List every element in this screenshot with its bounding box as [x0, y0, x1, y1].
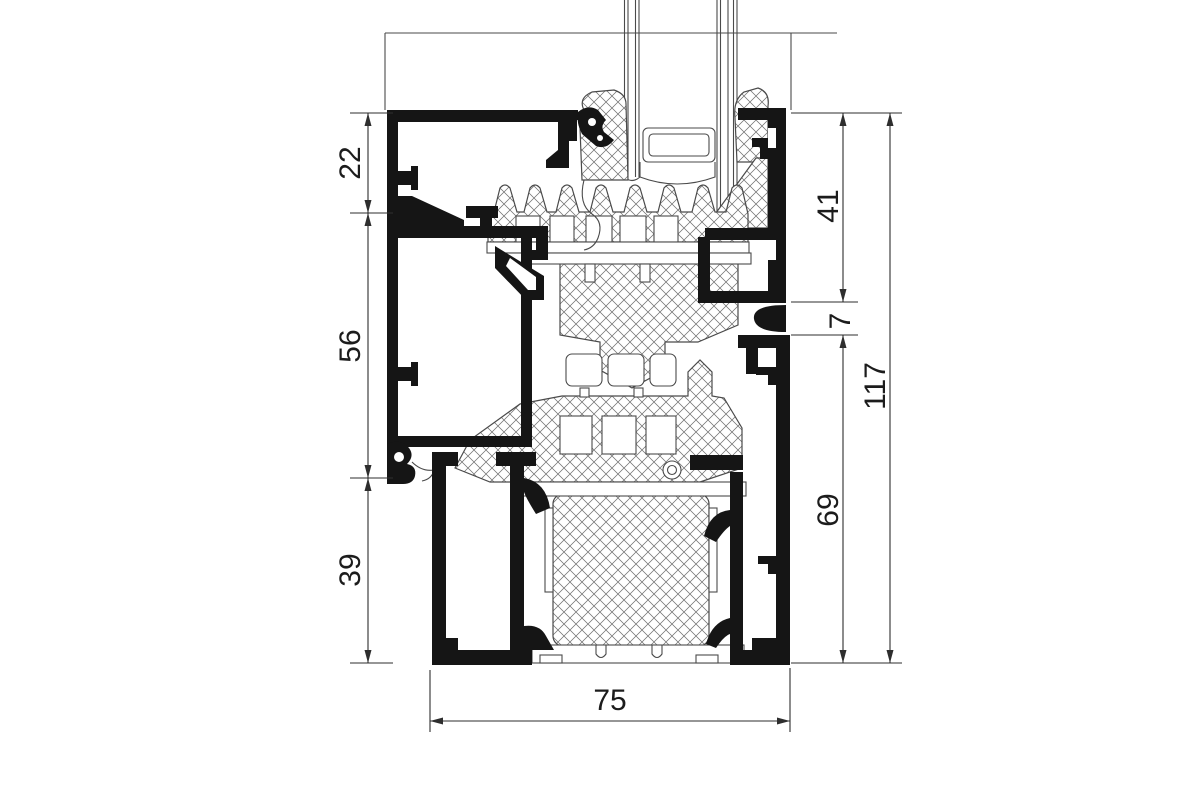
chamber-window	[608, 354, 644, 386]
dimension-label-39: 39	[334, 553, 367, 586]
dimension-label-41: 41	[812, 189, 845, 222]
plate-tab	[640, 264, 650, 282]
frame-right-outer-wall	[776, 335, 790, 665]
frame-right-hook	[758, 556, 776, 574]
drawing-canvas: 22 56 39 41 7 69 117 75	[0, 0, 1200, 800]
dimension-label-7: 7	[824, 313, 857, 330]
sill-foot	[752, 638, 778, 652]
sill-outer-left-wall	[432, 455, 446, 665]
dimension-label-56: 56	[334, 329, 367, 362]
sill-mid-bar	[690, 455, 743, 470]
dimension-label-69: 69	[812, 493, 845, 526]
block-bracket	[524, 626, 554, 650]
sill-cap-profile	[520, 482, 746, 496]
block-side-rail	[545, 508, 553, 592]
dimension-right-chain: 41 7 69 117	[791, 113, 902, 663]
glazing-bead-foot	[546, 150, 569, 168]
sill-bottom-bar-left	[432, 650, 532, 665]
frame-mid-shelf	[398, 226, 548, 238]
glazing-spacer-inner	[649, 134, 709, 156]
frame-left-wall	[387, 110, 398, 478]
bottom-insulation-block	[553, 494, 709, 646]
chamber-window	[566, 354, 602, 386]
dimension-bottom: 75	[430, 668, 790, 732]
cross-section-drawing: 22 56 39 41 7 69 117 75	[0, 0, 1200, 800]
seal-hole	[394, 452, 404, 462]
dimension-label-117: 117	[859, 362, 892, 410]
sash-glazing-shelf	[705, 228, 786, 240]
cover-foot	[540, 655, 562, 663]
cover-foot	[696, 655, 718, 663]
frame-top-bar	[387, 110, 577, 141]
dimension-label-75: 75	[593, 684, 626, 717]
gasket-hole	[597, 135, 603, 141]
chamber-window	[650, 354, 676, 386]
dimension-left-chain: 22 56 39	[334, 113, 393, 663]
frame-hook	[398, 166, 418, 190]
fastener-grommet-inner	[668, 466, 677, 475]
wall-notch	[768, 128, 776, 148]
outer-seal-lip	[412, 462, 434, 481]
frame-rail	[466, 206, 498, 218]
sill-inner-left-wall	[510, 455, 524, 665]
wall-notch	[768, 240, 776, 260]
frame-hook	[398, 362, 418, 386]
glazing-spacer-bar	[643, 128, 715, 162]
butyl-seal	[640, 162, 715, 184]
gap-bubble-gasket	[754, 305, 786, 332]
frame-right-hook	[756, 367, 776, 385]
frame-chamber-bottom	[398, 436, 532, 447]
sill-foot	[432, 638, 458, 652]
plate-tab	[585, 264, 595, 282]
sash-bottom-bar	[698, 291, 786, 303]
dimension-label-22: 22	[334, 146, 367, 179]
sash-inner-wall	[698, 237, 710, 303]
gasket-hole	[588, 118, 596, 126]
glazing-bead-cap	[558, 110, 578, 120]
sill-inner-right-wall	[730, 472, 743, 665]
